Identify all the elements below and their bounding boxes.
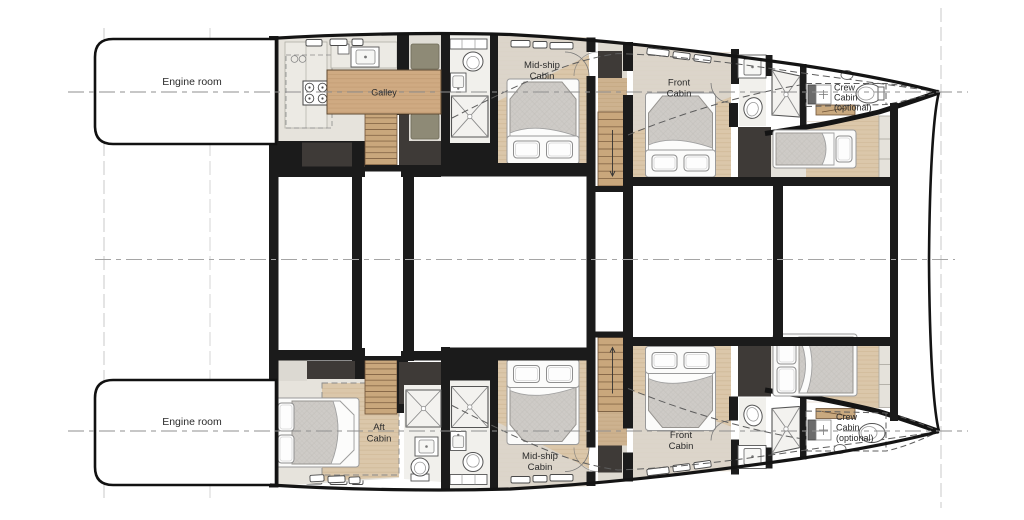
svg-text:Galley: Galley	[371, 88, 397, 98]
svg-text:Front: Front	[670, 430, 693, 441]
svg-text:(optional): (optional)	[834, 103, 872, 113]
svg-text:Cabin: Cabin	[834, 93, 858, 103]
svg-text:Cabin: Cabin	[528, 462, 553, 473]
svg-text:Cabin: Cabin	[530, 71, 555, 82]
svg-text:Engine room: Engine room	[162, 416, 222, 428]
svg-text:Cabin: Cabin	[667, 89, 692, 100]
svg-text:Mid-ship: Mid-ship	[522, 451, 558, 462]
svg-text:(optional): (optional)	[836, 433, 874, 443]
svg-text:Front: Front	[668, 78, 691, 89]
svg-text:Crew: Crew	[834, 83, 856, 93]
svg-text:Cabin: Cabin	[836, 423, 860, 433]
svg-text:Cabin: Cabin	[669, 441, 694, 452]
svg-text:Cabin: Cabin	[367, 434, 392, 445]
svg-text:Crew: Crew	[836, 412, 858, 422]
svg-text:Aft: Aft	[373, 422, 385, 433]
svg-text:Mid-ship: Mid-ship	[524, 60, 560, 71]
svg-text:Engine room: Engine room	[162, 76, 222, 88]
